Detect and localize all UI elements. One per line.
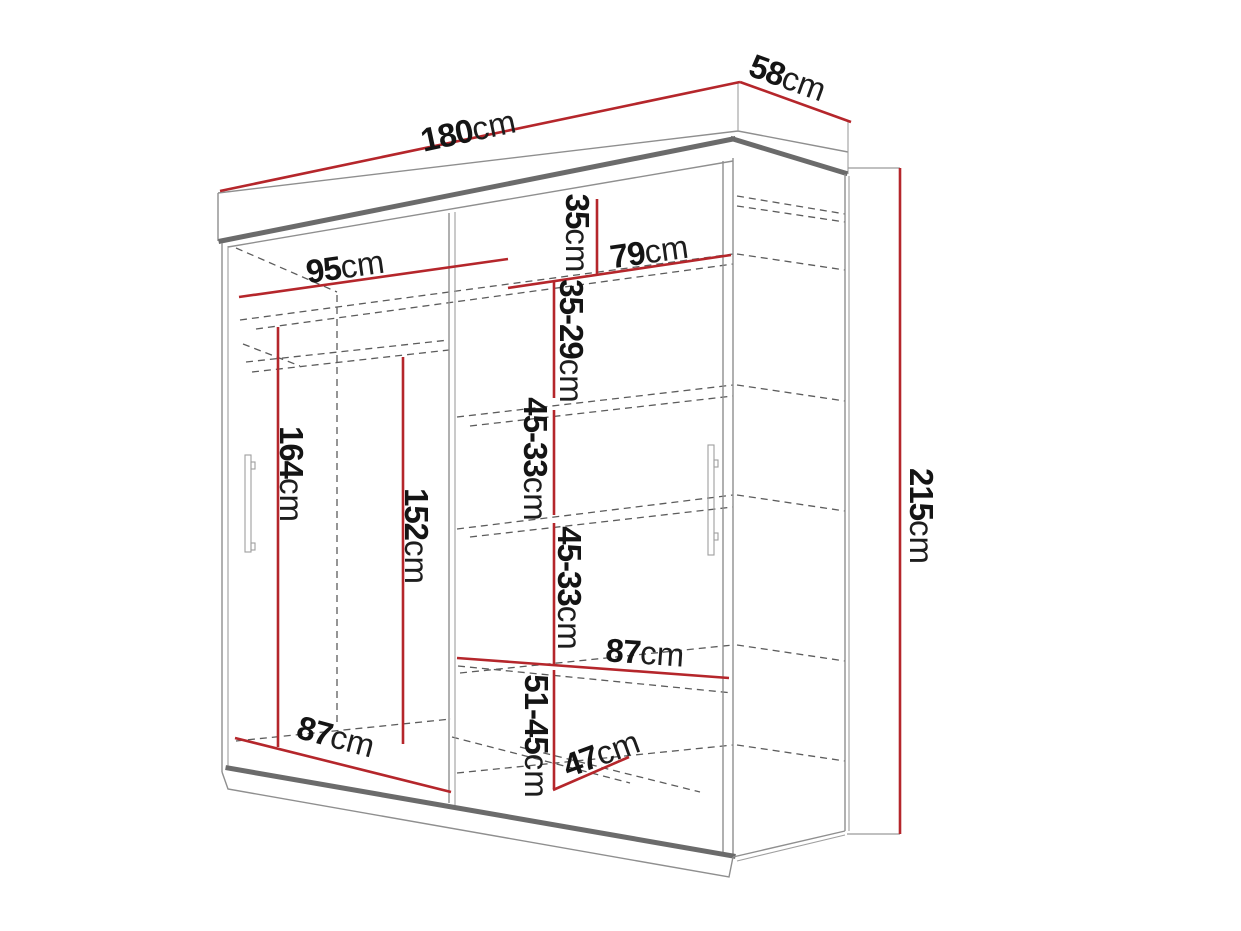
plinth bbox=[222, 772, 733, 877]
left-door-handle bbox=[245, 455, 255, 552]
side-panel bbox=[733, 174, 849, 861]
wardrobe-dimension-diagram: 180cm 58cm 215cm 95cm 79cm 35cm 35-29cm … bbox=[0, 0, 1241, 931]
dim-top-gap-label: 35cm bbox=[560, 194, 597, 273]
dim-right-section-label: 79cm bbox=[607, 227, 690, 275]
dim-shelf-gap-2-label: 45-33cm bbox=[518, 397, 555, 520]
dim-mid-shelf-label: 87cm bbox=[604, 631, 685, 673]
dim-width-label: 180cm bbox=[417, 102, 519, 158]
dim-mid-shelf-line bbox=[457, 658, 729, 678]
dim-shelf-gap-1-label: 35-29cm bbox=[554, 279, 591, 402]
dim-bottom-gap-label: 51-45cm bbox=[519, 674, 556, 797]
diagram-canvas: 180cm 58cm 215cm 95cm 79cm 35cm 35-29cm … bbox=[0, 0, 1241, 931]
dim-left-height-label: 164cm bbox=[274, 426, 311, 522]
dim-left-section-label: 95cm bbox=[303, 242, 386, 290]
dim-height-line bbox=[847, 168, 900, 834]
dim-height-label: 215cm bbox=[904, 468, 941, 564]
dim-mid-height-label: 152cm bbox=[399, 488, 436, 584]
right-door-handle bbox=[708, 445, 718, 555]
dim-shelf-gap-3-label: 45-33cm bbox=[552, 526, 589, 649]
top-panel bbox=[218, 82, 848, 241]
